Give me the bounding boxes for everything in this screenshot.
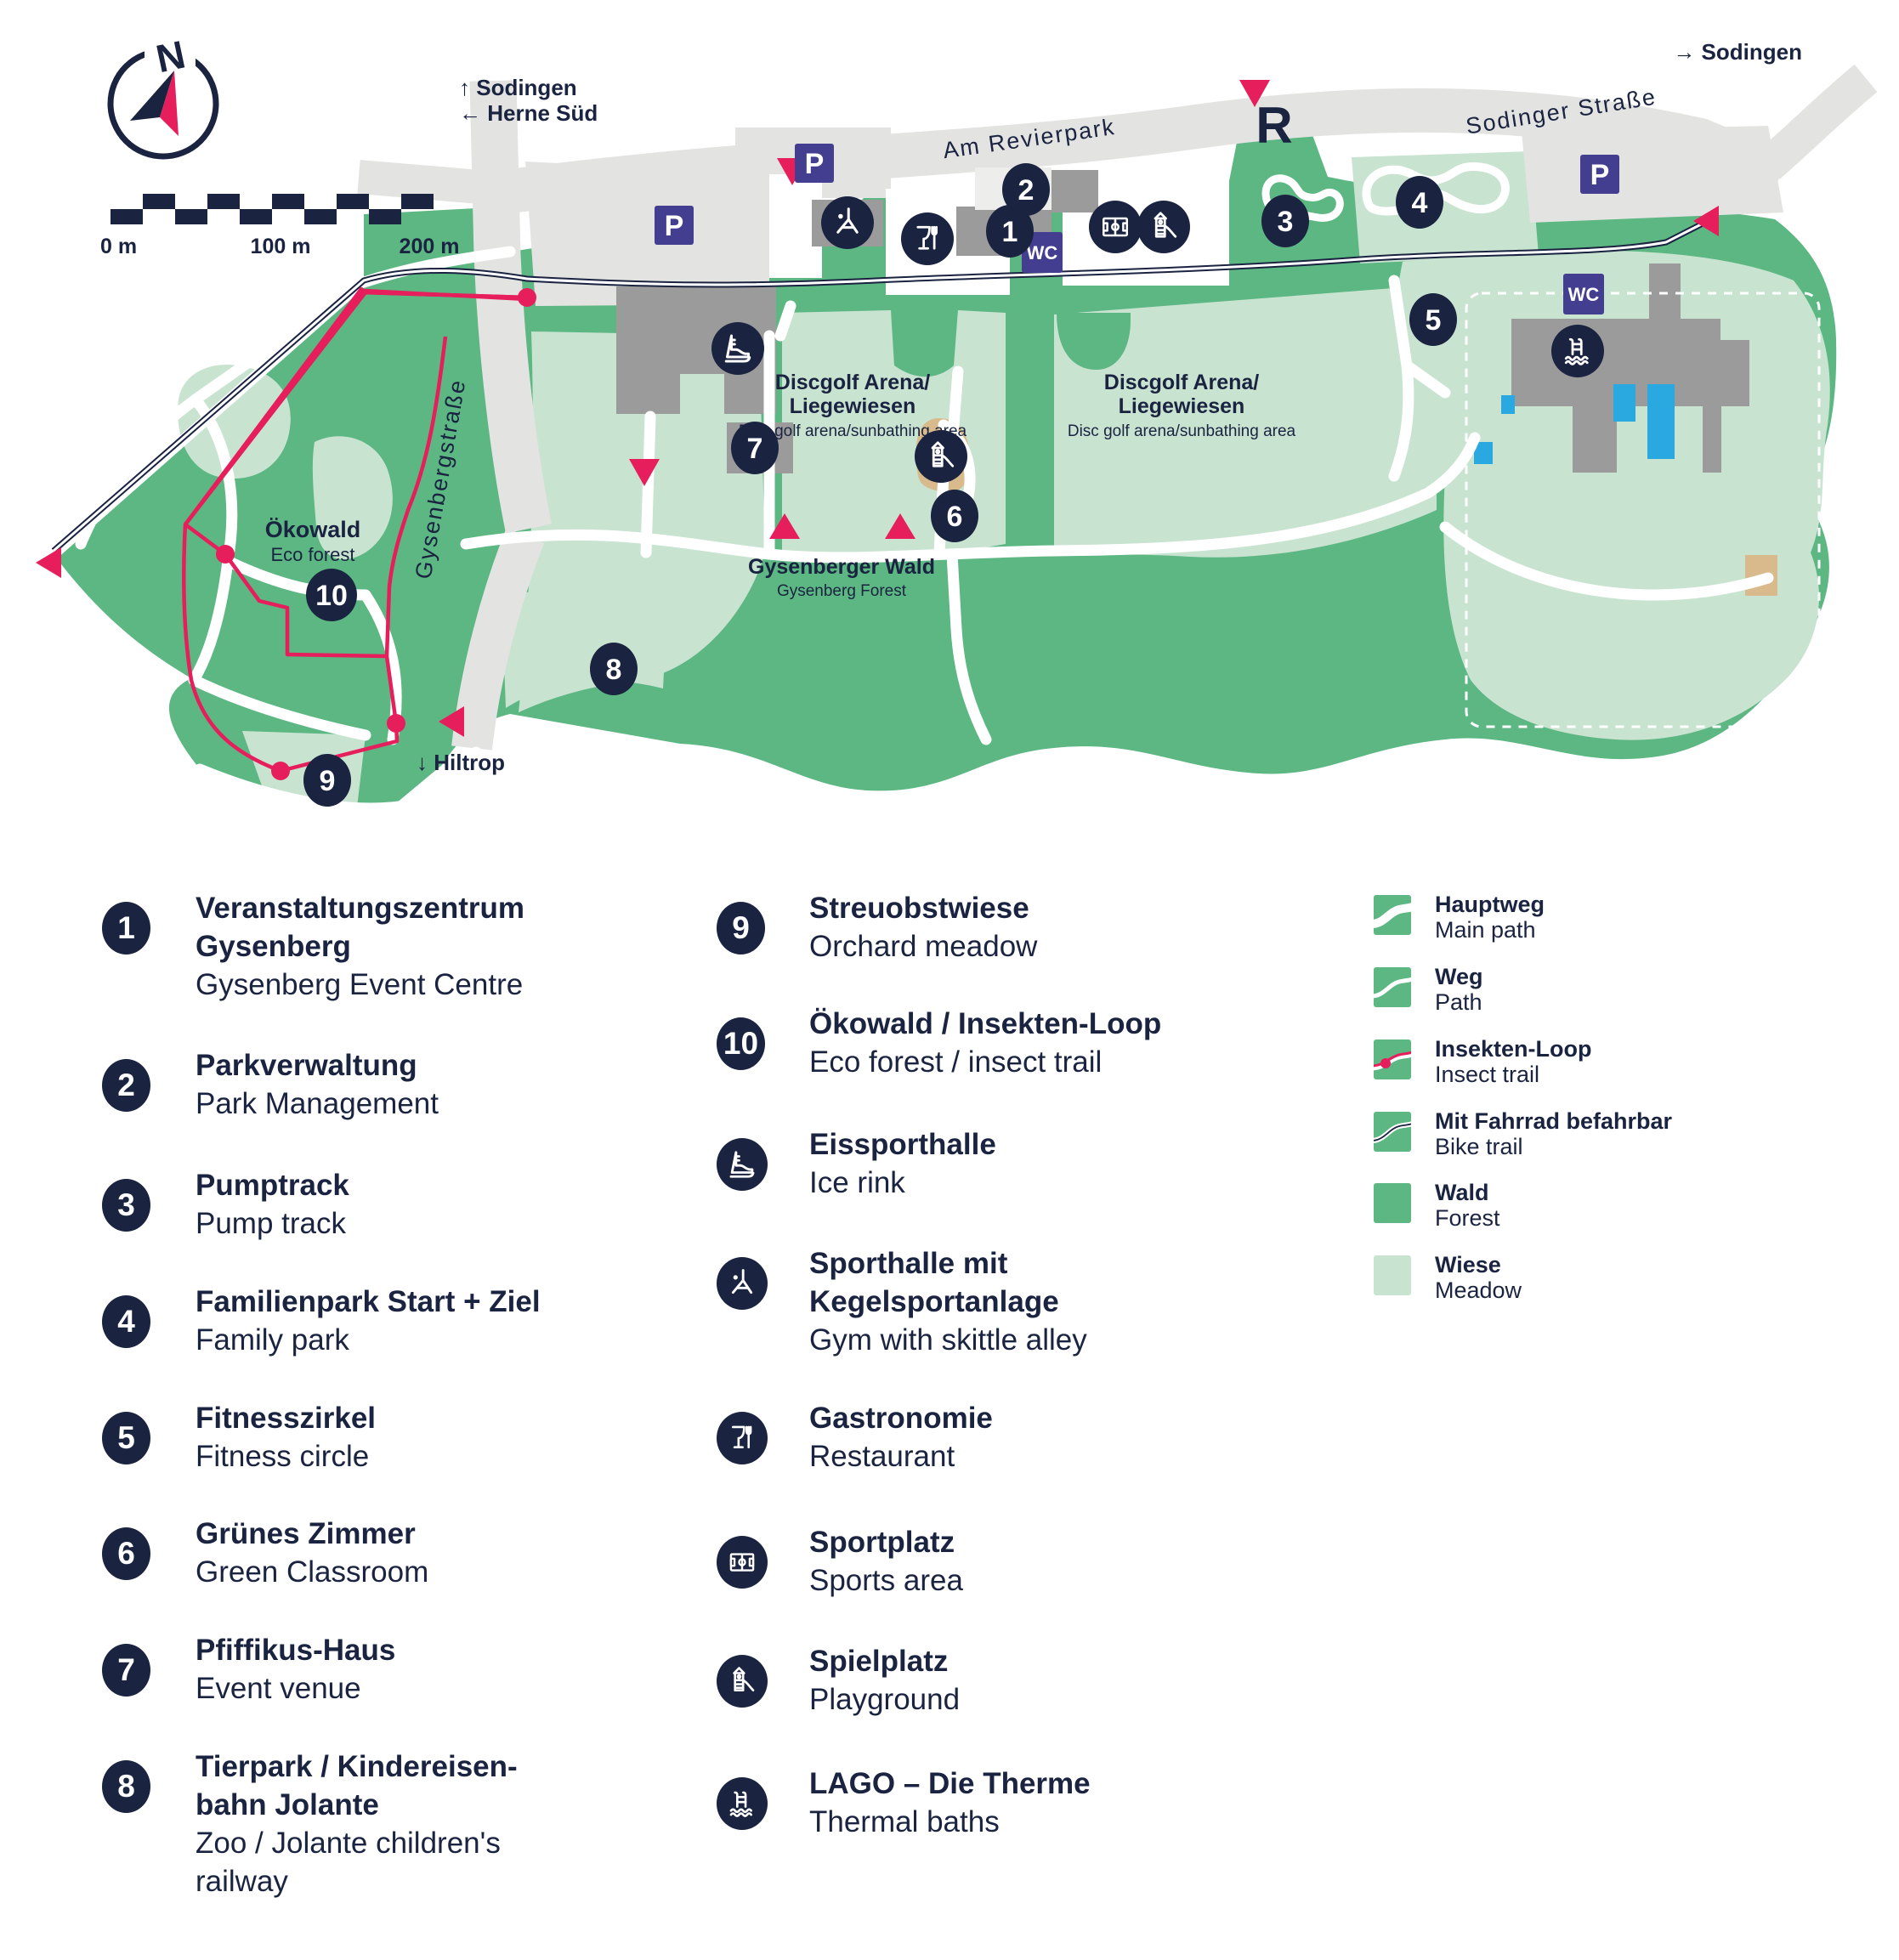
legend-title-de: Insekten-Loop	[1435, 1036, 1816, 1062]
sports-field-icon	[717, 1536, 768, 1589]
entrance-icon	[36, 547, 61, 578]
legend-title-de: bahn Jolante	[196, 1786, 612, 1824]
map: P P P WC WC Am Revierpark Sodinger Straß	[0, 0, 1899, 858]
legend-item-4: 4 Familienpark Start + ZielFamily park	[102, 1283, 612, 1359]
legend-title-de: Spielplatz	[809, 1642, 1227, 1680]
compass-rose: N	[111, 31, 216, 156]
legend-title-de: Sportplatz	[809, 1523, 1227, 1561]
svg-text:1: 1	[1002, 216, 1018, 248]
legend-title-de: Pumptrack	[196, 1166, 612, 1204]
legend-item-playground: SpielplatzPlayground	[717, 1642, 1227, 1719]
scale-label-100: 100 m	[251, 235, 311, 258]
legend-swatch-meadow: WieseMeadow	[1374, 1255, 1816, 1303]
legend-title-en: Meadow	[1435, 1277, 1816, 1303]
legend-swatch-main-path: HauptwegMain path	[1374, 895, 1816, 943]
legend-marker-10: 10	[717, 1017, 765, 1070]
restaurant-icon	[901, 212, 954, 265]
marker-number: 8	[117, 1769, 135, 1804]
marker-number: 2	[117, 1068, 135, 1103]
road-herne-sued	[359, 177, 520, 190]
legend-title-de: Familienpark Start + Ziel	[196, 1283, 612, 1321]
restaurant-icon	[717, 1412, 768, 1464]
area-label-oekowald: Ökowald Eco forest	[265, 517, 361, 565]
lago-annex	[1720, 340, 1749, 406]
legend-marker-4: 4	[102, 1295, 150, 1348]
marker-10: 10	[306, 569, 357, 621]
svg-text:Liegewiesen: Liegewiesen	[790, 394, 916, 418]
legend-title-en: Family park	[196, 1321, 612, 1359]
thermal-baths-icon	[1551, 325, 1604, 377]
legend-title-en: Orchard meadow	[809, 927, 1227, 966]
legend-title-de: Tierpark / Kindereisen-	[196, 1748, 612, 1786]
legend-swatch-bike-trail: Mit Fahrrad befahrbarBike trail	[1374, 1112, 1816, 1159]
ice-skate-icon	[711, 322, 764, 375]
marker-9: 9	[303, 754, 351, 807]
svg-text:Eco forest: Eco forest	[270, 544, 354, 565]
svg-text:Discgolf Arena/: Discgolf Arena/	[775, 371, 931, 394]
legend-marker-9: 9	[717, 902, 765, 955]
thermal-baths-icon	[717, 1777, 768, 1830]
sports-field-icon	[1089, 201, 1142, 253]
svg-text:8: 8	[606, 654, 622, 686]
legend-title-en: Green Classroom	[196, 1553, 612, 1591]
wc-icon: WC	[1563, 274, 1604, 314]
marker-number: 5	[117, 1420, 135, 1456]
lago-leg-1	[1573, 406, 1617, 473]
legend-title-en: Gysenberg Event Centre	[196, 966, 612, 1004]
marker-8: 8	[590, 643, 638, 695]
svg-text:Liegewiesen: Liegewiesen	[1119, 394, 1245, 418]
legend-marker-2: 2	[102, 1059, 150, 1112]
legend-title-de: Wiese	[1435, 1252, 1816, 1277]
legend-title-de: Kegelsportanlage	[809, 1283, 1227, 1321]
gym-icon	[821, 196, 874, 249]
svg-text:5: 5	[1426, 304, 1442, 337]
direction-label: ↓ Hiltrop	[417, 750, 505, 775]
road-sodingen-exit	[1768, 78, 1866, 166]
svg-text:Gysenberger Wald: Gysenberger Wald	[748, 555, 935, 579]
legend-title-de: Parkverwaltung	[196, 1046, 612, 1085]
parking-icon: P	[795, 144, 834, 183]
path-swatch-icon	[1374, 967, 1411, 1007]
marker-number: 3	[117, 1187, 135, 1223]
marker-3: 3	[1261, 195, 1309, 247]
legend-title-en: Pump track	[196, 1204, 612, 1243]
svg-text:Disc golf arena/sunbathing are: Disc golf arena/sunbathing area	[1068, 422, 1296, 440]
direction-label: → Sodingen	[1673, 39, 1802, 65]
legend-title-en: Thermal baths	[809, 1803, 1227, 1841]
svg-text:6: 6	[947, 501, 963, 533]
legend-title-en: Eco forest / insect trail	[809, 1043, 1227, 1081]
legend-title-de: Ökowald / Insekten-Loop	[809, 1005, 1227, 1043]
legend-item-gym: Sporthalle mitKegelsportanlageGym with s…	[717, 1244, 1227, 1359]
legend-swatch-forest: WaldForest	[1374, 1183, 1816, 1231]
svg-text:P: P	[1590, 159, 1610, 191]
legend-marker-8: 8	[102, 1760, 150, 1813]
pool-2	[1647, 384, 1675, 459]
direction-label: ← Herne Süd	[459, 100, 598, 126]
svg-text:Discgolf Arena/: Discgolf Arena/	[1104, 371, 1260, 394]
marker-number: 1	[117, 910, 135, 946]
forest-swatch-icon	[1374, 1183, 1411, 1223]
legend-swatch-insect-trail: Insekten-LoopInsect trail	[1374, 1039, 1816, 1087]
svg-text:P: P	[805, 148, 825, 180]
legend-item-3: 3 PumptrackPump track	[102, 1166, 612, 1243]
legend-item-8: 8 Tierpark / Kindereisen-bahn JolanteZoo…	[102, 1748, 612, 1901]
legend-title-en: Bike trail	[1435, 1134, 1816, 1159]
legend-title-de: Gastronomie	[809, 1399, 1227, 1437]
marker-6: 6	[931, 490, 978, 542]
playground-icon	[1137, 201, 1190, 253]
legend-title-en: Path	[1435, 989, 1816, 1015]
svg-text:WC: WC	[1027, 242, 1058, 263]
legend-title-en: Event venue	[196, 1669, 612, 1708]
marker-number: 4	[117, 1304, 135, 1340]
pool-3	[1501, 395, 1515, 414]
direction-label: ↑ Sodingen	[459, 75, 577, 100]
lago-tower	[1649, 263, 1681, 319]
marker-2: 2	[1002, 163, 1050, 216]
legend-marker-6: 6	[102, 1527, 150, 1580]
legend-item-5: 5 FitnesszirkelFitness circle	[102, 1399, 612, 1476]
legend-title-en: Main path	[1435, 917, 1816, 943]
legend-title-de: Hauptweg	[1435, 892, 1816, 917]
legend-item-6: 6 Grünes ZimmerGreen Classroom	[102, 1515, 612, 1591]
legend-title-en: railway	[196, 1862, 612, 1901]
legend-item-9: 9 StreuobstwieseOrchard meadow	[717, 889, 1227, 966]
scale-label-0: 0 m	[100, 235, 137, 258]
legend-swatch-path: WegPath	[1374, 967, 1816, 1015]
legend-marker-3: 3	[102, 1179, 150, 1232]
legend-title-en: Gym with skittle alley	[809, 1321, 1227, 1359]
legend-title-de: Eissporthalle	[809, 1125, 1227, 1164]
bike-trail-swatch-icon	[1374, 1112, 1411, 1152]
legend-title-en: Insect trail	[1435, 1062, 1816, 1087]
scale-label-200: 200 m	[400, 235, 460, 258]
revierpark-logo: R	[1256, 97, 1292, 154]
svg-text:P: P	[665, 210, 684, 242]
legend-title-de: Sporthalle mit	[809, 1244, 1227, 1283]
legend-title-de: Veranstaltungszentrum	[196, 889, 612, 927]
legend-title-de: Grünes Zimmer	[196, 1515, 612, 1553]
legend-title-de: Pfiffikus-Haus	[196, 1631, 612, 1669]
legend-item-10: 10 Ökowald / Insekten-LoopEco forest / i…	[717, 1005, 1227, 1081]
svg-text:4: 4	[1412, 187, 1428, 219]
marker-number: 10	[723, 1026, 758, 1062]
park-map-page: P P P WC WC Am Revierpark Sodinger Straß	[0, 0, 1899, 1960]
legend-item-sports-area: SportplatzSports area	[717, 1523, 1227, 1600]
parking-icon: P	[655, 206, 694, 245]
legend-title-en: Sports area	[809, 1561, 1227, 1600]
svg-text:10: 10	[315, 580, 348, 612]
marker-number: 9	[732, 910, 750, 946]
legend-title-de: Streuobstwiese	[809, 889, 1227, 927]
legend-item-2: 2 ParkverwaltungPark Management	[102, 1046, 612, 1123]
svg-text:Ökowald: Ökowald	[265, 517, 361, 542]
main-path-swatch-icon	[1374, 895, 1411, 935]
legend-title-en: Forest	[1435, 1205, 1816, 1231]
parking-lot-c	[1522, 126, 1783, 223]
meadow-swatch-icon	[1374, 1255, 1411, 1295]
legend-title-en: Fitness circle	[196, 1437, 612, 1476]
svg-text:2: 2	[1018, 174, 1035, 207]
legend-title-en: Ice rink	[809, 1164, 1227, 1202]
marker-number: 7	[117, 1652, 135, 1688]
legend-title-en: Zoo / Jolante children's	[196, 1824, 612, 1862]
playground-icon	[717, 1655, 768, 1708]
gym-icon	[717, 1257, 768, 1310]
pool-1	[1613, 384, 1635, 422]
legend-title-de: Gysenberg	[196, 927, 612, 966]
legend-item-1: 1 VeranstaltungszentrumGysenbergGysenber…	[102, 889, 612, 1004]
legend-item-ice-rink: EissporthalleIce rink	[717, 1125, 1227, 1202]
parking-icon: P	[1580, 155, 1619, 194]
legend-marker-7: 7	[102, 1644, 150, 1697]
legend-item-7: 7 Pfiffikus-HausEvent venue	[102, 1631, 612, 1708]
legend-item-restaurant: GastronomieRestaurant	[717, 1399, 1227, 1476]
legend-marker-1: 1	[102, 902, 150, 955]
svg-text:3: 3	[1278, 206, 1294, 238]
marker-5: 5	[1409, 293, 1457, 346]
svg-text:7: 7	[747, 433, 763, 465]
legend-marker-5: 5	[102, 1412, 150, 1464]
legend-title-en: Restaurant	[809, 1437, 1227, 1476]
building-ne	[1052, 170, 1098, 212]
legend-title-de: Weg	[1435, 964, 1816, 989]
legend-title-en: Playground	[809, 1680, 1227, 1719]
svg-text:Gysenberg Forest: Gysenberg Forest	[777, 582, 907, 600]
legend-title-en: Park Management	[196, 1085, 612, 1123]
insect-trail-swatch-icon	[1374, 1039, 1411, 1079]
legend-title-de: Fitnesszirkel	[196, 1399, 612, 1437]
legend-title-de: LAGO – Die Therme	[809, 1765, 1227, 1803]
lago-leg-2	[1703, 406, 1721, 473]
marker-number: 6	[117, 1536, 135, 1572]
legend-title-de: Wald	[1435, 1180, 1816, 1205]
svg-text:9: 9	[320, 765, 336, 797]
marker-7: 7	[731, 422, 779, 474]
ice-skate-icon	[717, 1138, 768, 1191]
svg-text:WC: WC	[1568, 284, 1600, 305]
legend-title-de: Mit Fahrrad befahrbar	[1435, 1108, 1816, 1134]
marker-4: 4	[1396, 176, 1443, 229]
legend-item-thermal-baths: LAGO – Die ThermeThermal baths	[717, 1765, 1227, 1841]
